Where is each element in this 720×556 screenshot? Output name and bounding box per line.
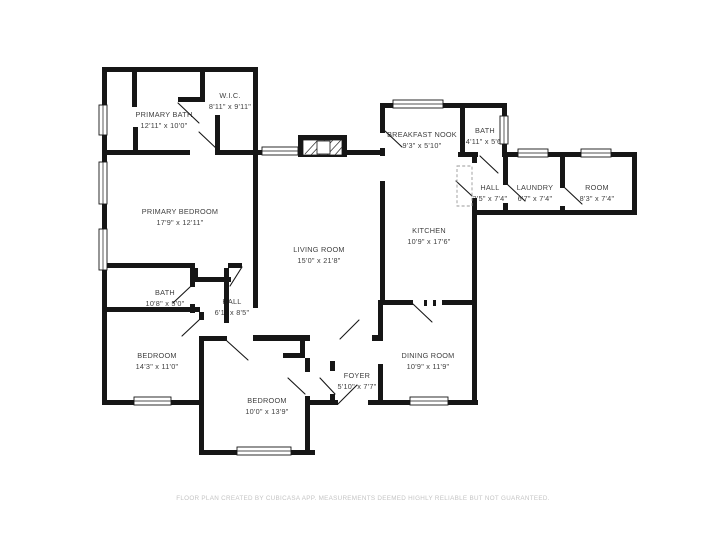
room-dims-bath-top: 4'11" x 5'6" bbox=[466, 137, 505, 146]
room-name-laundry: LAUNDRY bbox=[517, 183, 554, 192]
room-dims-primary-bedroom: 17'9" x 12'11" bbox=[156, 218, 203, 227]
window bbox=[500, 116, 508, 144]
window bbox=[237, 447, 291, 455]
room-name-bedroom-left: BEDROOM bbox=[137, 351, 176, 360]
room-name-living-room: LIVING ROOM bbox=[293, 245, 344, 254]
canvas-background bbox=[0, 0, 720, 556]
window bbox=[410, 397, 448, 405]
room-name-bath-left: BATH bbox=[155, 288, 175, 297]
window bbox=[581, 149, 611, 157]
fireplace-firebox bbox=[317, 141, 330, 154]
room-dims-room: 8'3" x 7'4" bbox=[580, 194, 615, 203]
floor-plan-canvas: PRIMARY BATH 12'11" x 10'0" W.I.C. 8'11"… bbox=[0, 0, 720, 556]
room-dims-bath-left: 10'8" x 5'0" bbox=[146, 299, 185, 308]
footer-disclaimer: FLOOR PLAN CREATED BY CUBICASA APP. MEAS… bbox=[176, 495, 550, 502]
room-name-breakfast-nook: BREAKFAST NOOK bbox=[387, 130, 457, 139]
room-dims-bedroom-left: 14'3" x 11'0" bbox=[136, 362, 179, 371]
room-dims-hall-left: 6'1" x 8'5" bbox=[215, 308, 250, 317]
room-name-primary-bedroom: PRIMARY BEDROOM bbox=[142, 207, 218, 216]
fireplace bbox=[298, 135, 347, 157]
room-dims-dining-room: 10'9" x 11'9" bbox=[407, 362, 450, 371]
room-name-hall-right: HALL bbox=[480, 183, 499, 192]
window bbox=[518, 149, 548, 157]
room-name-bath-top: BATH bbox=[475, 126, 495, 135]
room-dims-living-room: 15'0" x 21'8" bbox=[297, 256, 340, 265]
room-name-kitchen: KITCHEN bbox=[412, 226, 446, 235]
window bbox=[134, 397, 171, 405]
window bbox=[99, 229, 107, 270]
window bbox=[99, 105, 107, 135]
window bbox=[262, 147, 298, 155]
window bbox=[393, 100, 443, 108]
room-name-bedroom-bottom: BEDROOM bbox=[247, 396, 286, 405]
room-name-dining-room: DINING ROOM bbox=[401, 351, 454, 360]
room-dims-kitchen: 10'9" x 17'6" bbox=[407, 237, 450, 246]
room-name-room: ROOM bbox=[585, 183, 609, 192]
room-dims-bedroom-bottom: 10'0" x 13'9" bbox=[245, 407, 288, 416]
room-name-wic: W.I.C. bbox=[219, 91, 240, 100]
room-dims-wic: 8'11" x 9'11" bbox=[209, 102, 251, 111]
floor-plan-page: PRIMARY BATH 12'11" x 10'0" W.I.C. 8'11"… bbox=[0, 0, 720, 556]
room-name-foyer: FOYER bbox=[344, 371, 370, 380]
window bbox=[99, 162, 107, 204]
room-dims-primary-bath: 12'11" x 10'0" bbox=[140, 121, 187, 130]
room-dims-hall-right: 3'5" x 7'4" bbox=[473, 194, 508, 203]
room-name-primary-bath: PRIMARY BATH bbox=[136, 110, 193, 119]
room-dims-breakfast-nook: 9'3" x 5'10" bbox=[403, 141, 442, 150]
room-dims-foyer: 5'10" x 7'7" bbox=[338, 382, 377, 391]
